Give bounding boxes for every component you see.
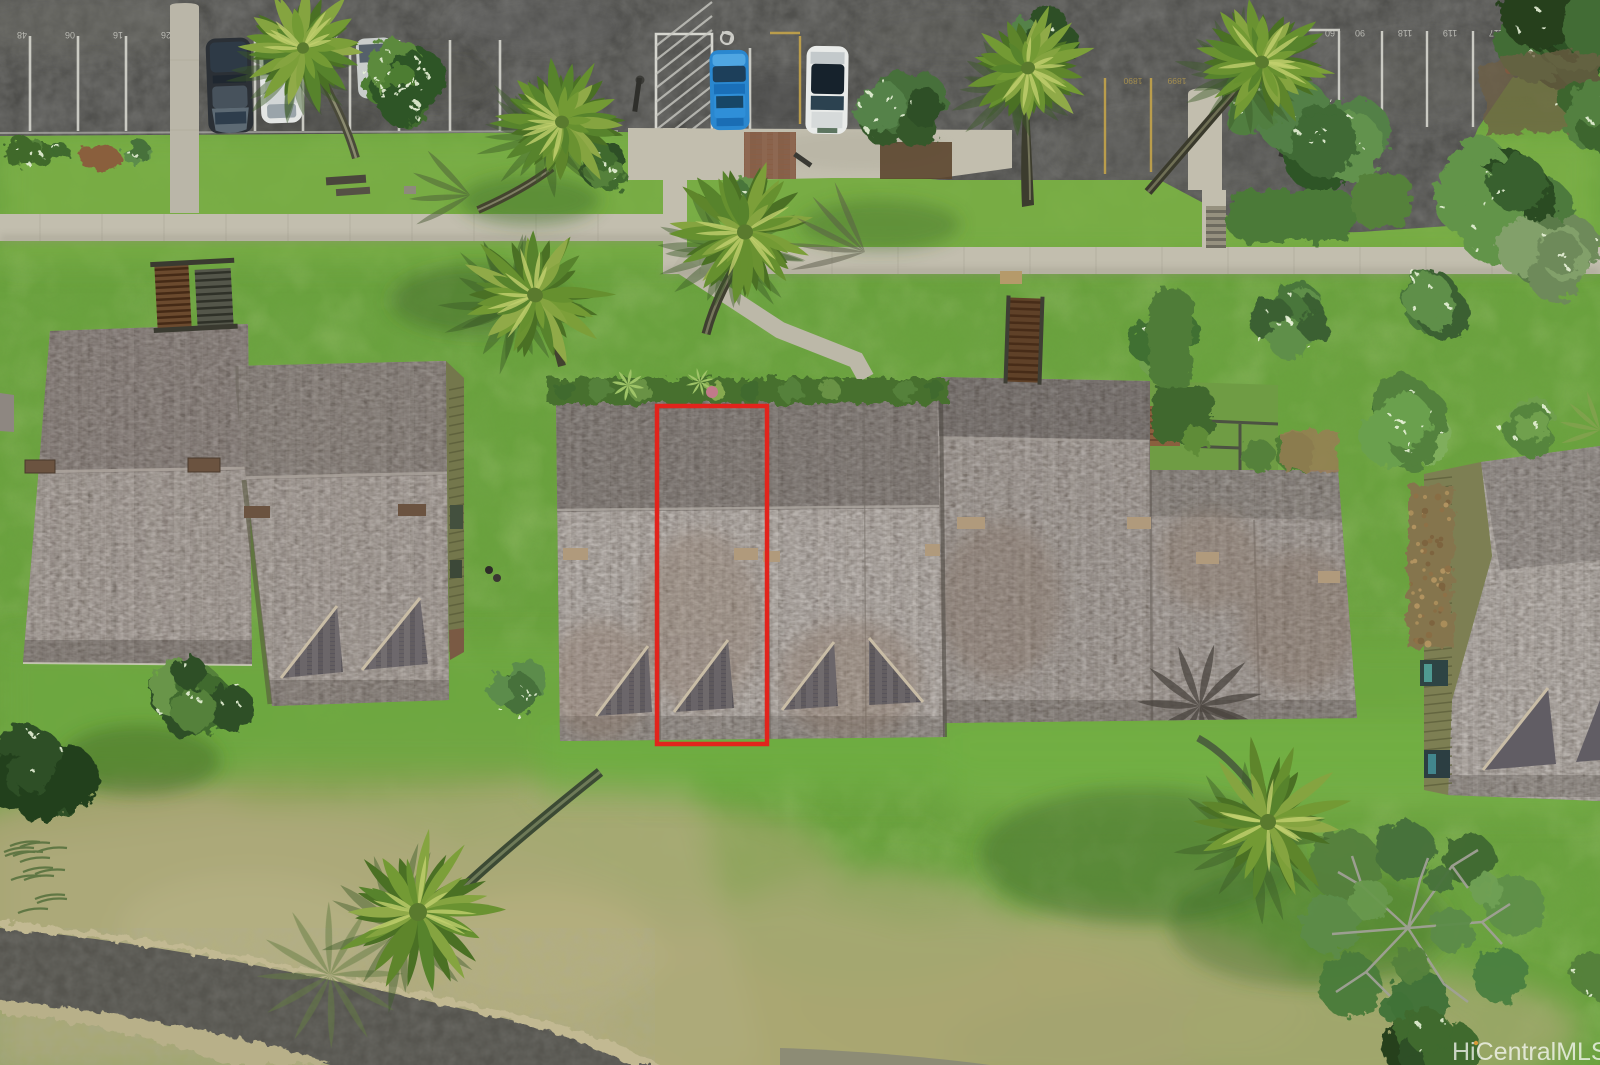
svg-text:118: 118 (1398, 28, 1412, 38)
svg-text:1890: 1890 (1123, 76, 1142, 86)
svg-text:119: 119 (1443, 28, 1457, 38)
svg-text:16: 16 (113, 30, 123, 40)
svg-text:60: 60 (1325, 28, 1335, 38)
svg-text:06: 06 (65, 30, 75, 40)
svg-text:90: 90 (1355, 28, 1365, 38)
svg-text:26: 26 (161, 30, 171, 40)
svg-text:48: 48 (17, 30, 27, 40)
svg-text:1899: 1899 (1167, 76, 1186, 86)
